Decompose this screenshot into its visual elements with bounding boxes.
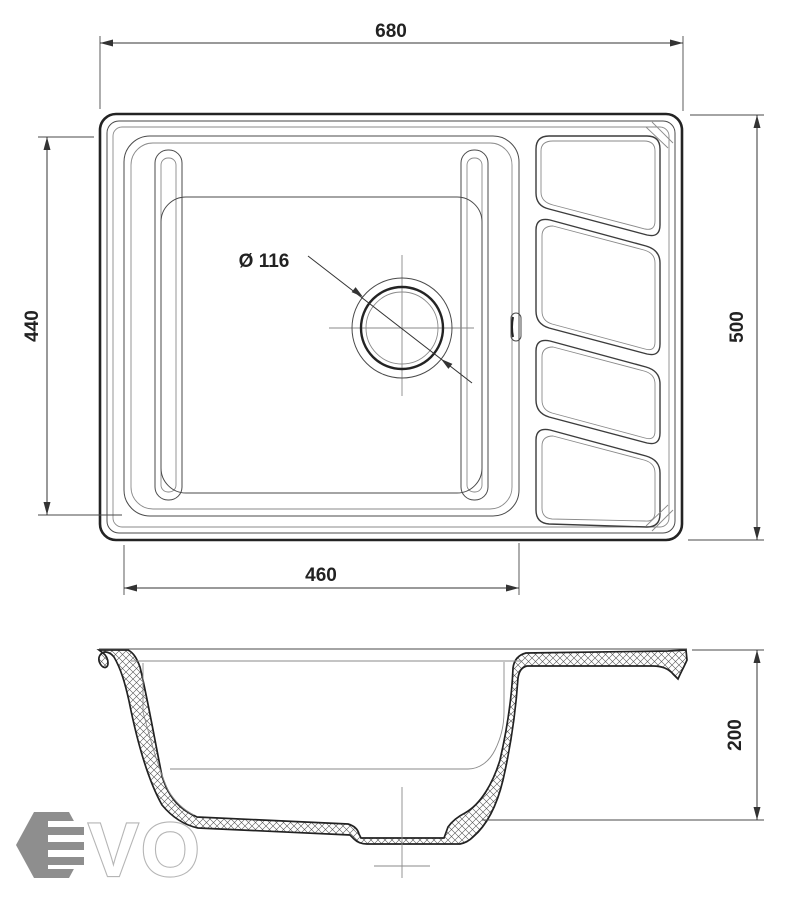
drain-diameter-label: Ø 116 (239, 251, 290, 272)
logo-e-bar-1 (48, 827, 84, 835)
dimension-label-440: 440 (22, 310, 43, 342)
background (0, 0, 790, 900)
drawing-canvas: 680 500 440 460 Ø 116 (0, 0, 790, 900)
logo-e-bar-3 (48, 857, 84, 865)
logo-vo-text: VO (88, 808, 202, 893)
sink-technical-drawing: 680 500 440 460 Ø 116 (0, 0, 790, 900)
overflow-slot-shadow (512, 317, 513, 337)
logo-e-bar-2 (48, 842, 84, 850)
dimension-label-460: 460 (305, 565, 337, 586)
dimension-label-500: 500 (727, 311, 748, 343)
dimension-label-680: 680 (375, 21, 407, 42)
dimension-label-200: 200 (725, 719, 746, 751)
